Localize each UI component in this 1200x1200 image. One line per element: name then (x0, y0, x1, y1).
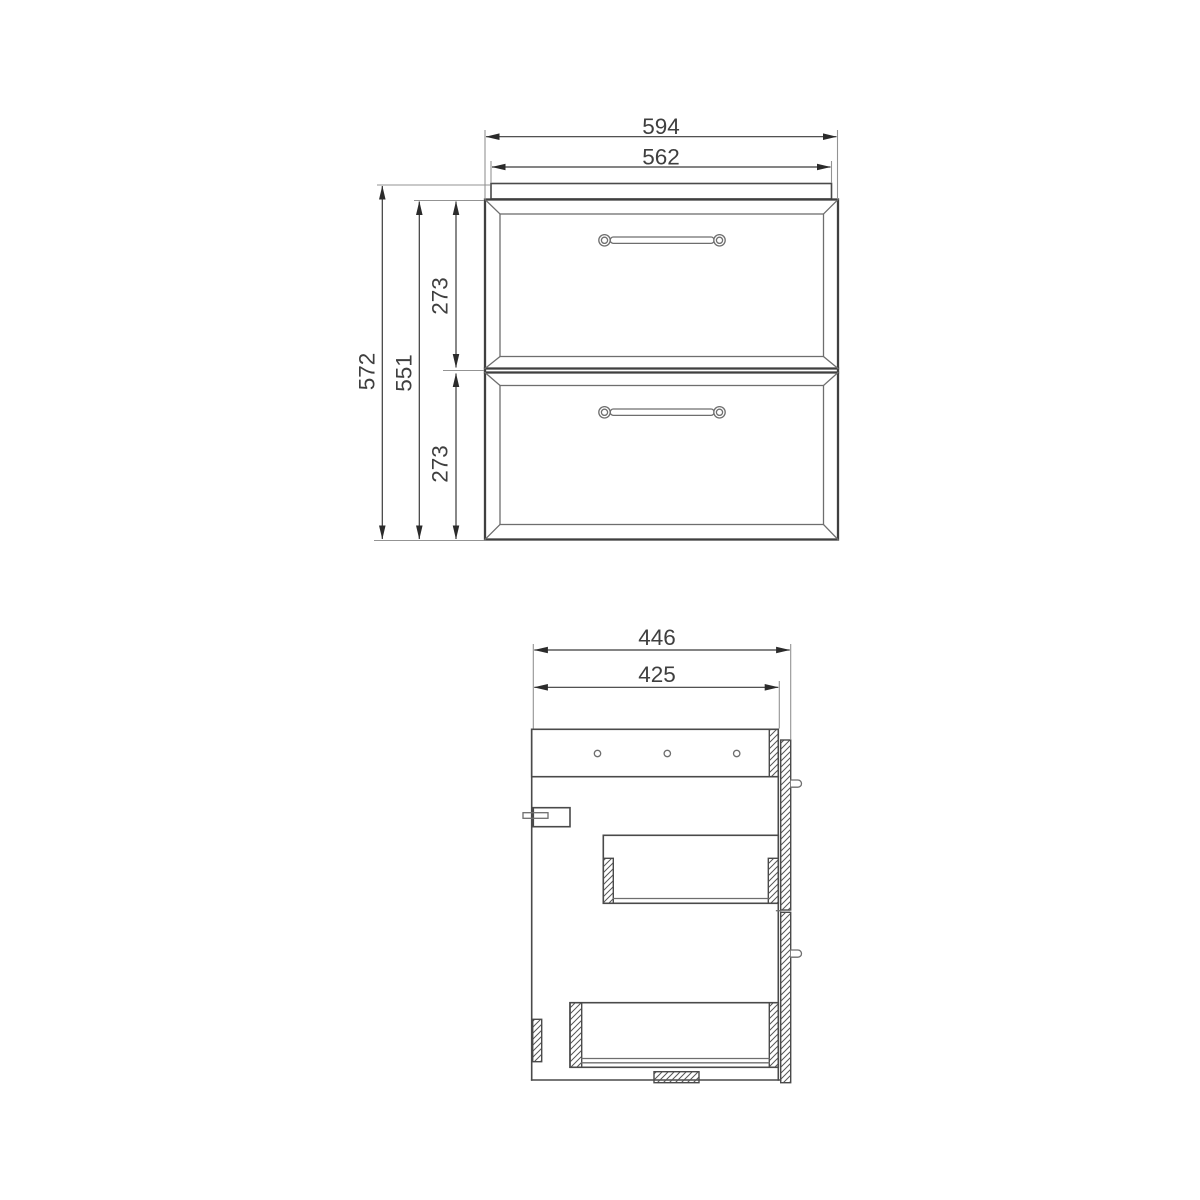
chamfer-line (485, 525, 500, 540)
upper-drawer-back-section (603, 858, 613, 903)
upper-drawer-front (485, 200, 838, 369)
dim-label-top-drawer-height: 273 (428, 277, 453, 315)
side-extension-lines (533, 644, 790, 739)
wall-bracket (523, 808, 570, 827)
lower-drawer-front (485, 373, 838, 540)
lower-drawer-side (570, 1003, 778, 1068)
lower-drawer-box (570, 1003, 778, 1068)
handle-end (599, 407, 610, 418)
handle-end (714, 235, 725, 246)
countertop (491, 184, 832, 200)
chamfer-line (485, 200, 500, 215)
bottom-rail-section (654, 1072, 699, 1083)
handle-bar (610, 409, 714, 415)
upper-drawer-side (603, 835, 778, 903)
upper-drawer-inner-panel (500, 214, 824, 357)
front-dimensions: 594 562 572 551 273 273 (355, 114, 837, 539)
dim-label-bottom-drawer-height: 273 (428, 445, 453, 483)
back-batten-section (533, 1019, 542, 1061)
dim-label-cabinet-height: 551 (392, 354, 417, 392)
lower-drawer-inner-panel (500, 386, 824, 525)
dim-label-countertop-width: 562 (642, 145, 680, 170)
dim-label-overall-height: 572 (355, 353, 380, 391)
chamfer-line (824, 200, 839, 215)
upper-front-panel-section (781, 740, 791, 910)
lower-front-panel-section (781, 912, 791, 1082)
chamfer-line (485, 373, 500, 386)
upper-drawer-front-section (768, 858, 778, 903)
side-dimensions: 446 425 (534, 625, 789, 687)
side-view: 446 425 (523, 625, 802, 1083)
upper-drawer-box (603, 835, 778, 903)
technical-drawing: 594 562 572 551 273 273 (0, 0, 1200, 1200)
chamfer-line (824, 373, 839, 386)
chamfer-line (824, 525, 839, 540)
handle-knob (791, 950, 802, 957)
chamfer-line (824, 357, 839, 369)
lower-drawer-back-section (570, 1003, 582, 1068)
mounting-hole (664, 750, 670, 756)
handle-end (599, 235, 610, 246)
drawer-front-panels (777, 740, 802, 1083)
dim-label-carcass-depth: 425 (638, 662, 676, 687)
handle-end (714, 407, 725, 418)
top-rail-section (769, 729, 778, 776)
bracket-body (533, 808, 570, 827)
bracket-hook (523, 813, 548, 819)
mounting-hole (594, 750, 600, 756)
front-view: 594 562 572 551 273 273 (355, 114, 839, 541)
top-rail-outline (532, 729, 779, 776)
handle-bar (610, 237, 714, 243)
drawing-canvas: 594 562 572 551 273 273 (0, 0, 1200, 1200)
lower-drawer-front-section (769, 1003, 778, 1068)
chamfer-line (485, 357, 500, 369)
upper-drawer-handle (599, 235, 725, 246)
lower-drawer-handle (599, 407, 725, 418)
mounting-hole (734, 750, 740, 756)
dim-label-overall-depth: 446 (638, 625, 676, 650)
handle-knob (791, 780, 802, 787)
dim-label-overall-width: 594 (642, 114, 680, 139)
top-rail (532, 729, 779, 776)
